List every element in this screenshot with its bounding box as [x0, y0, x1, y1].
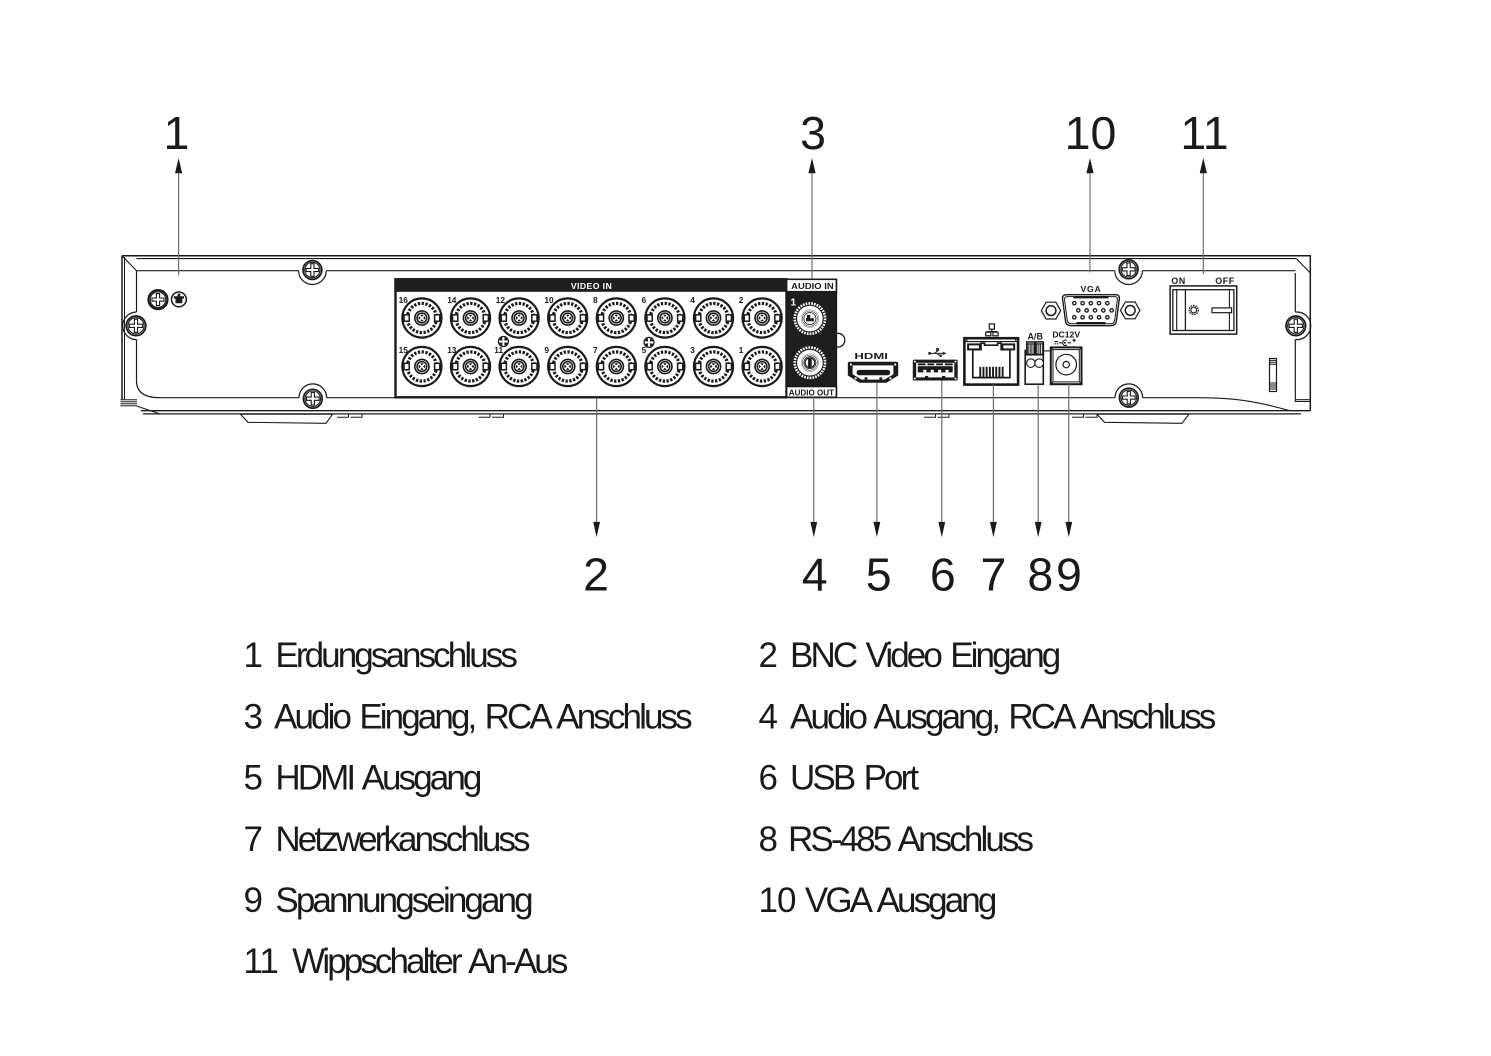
svg-text:3: 3	[690, 345, 695, 355]
svg-text:15: 15	[399, 345, 409, 355]
svg-text:5: 5	[244, 759, 262, 798]
svg-text:1: 1	[244, 636, 262, 675]
svg-text:Netzwerkanschluss: Netzwerkanschluss	[275, 820, 530, 859]
svg-text:AUDIO OUT: AUDIO OUT	[789, 387, 835, 397]
svg-text:4: 4	[802, 549, 828, 601]
svg-text:HDMI Ausgang: HDMI Ausgang	[275, 759, 481, 798]
svg-text:A/B: A/B	[1027, 331, 1043, 341]
svg-text:AUDIO IN: AUDIO IN	[791, 281, 834, 291]
svg-text:7: 7	[593, 345, 598, 355]
svg-text:12: 12	[496, 295, 506, 305]
svg-text:16: 16	[399, 295, 409, 305]
svg-text:Audio Eingang, RCA Anschluss: Audio Eingang, RCA Anschluss	[274, 697, 692, 736]
svg-text:BNC Video Eingang: BNC Video Eingang	[790, 636, 1060, 675]
svg-text:ON: ON	[1171, 276, 1185, 286]
svg-text:10: 10	[1065, 107, 1117, 159]
svg-text:6: 6	[642, 295, 647, 305]
svg-text:14: 14	[447, 295, 457, 305]
svg-text:4: 4	[759, 697, 778, 736]
svg-text:7: 7	[244, 820, 262, 859]
svg-text:10: 10	[759, 881, 796, 920]
svg-text:2: 2	[583, 549, 609, 601]
svg-text:8: 8	[593, 295, 598, 305]
svg-text:13: 13	[447, 345, 457, 355]
svg-text:2: 2	[759, 636, 777, 675]
svg-text:11: 11	[1180, 107, 1228, 159]
svg-text:9: 9	[1056, 549, 1082, 601]
svg-text:8: 8	[759, 820, 777, 859]
svg-text:2: 2	[739, 295, 744, 305]
svg-text:11: 11	[244, 942, 278, 981]
svg-text:1: 1	[163, 107, 189, 159]
svg-text:Erdungsanschluss: Erdungsanschluss	[275, 636, 517, 675]
svg-text:OFF: OFF	[1215, 276, 1234, 286]
svg-text:3: 3	[244, 697, 262, 736]
svg-text:4: 4	[690, 295, 695, 305]
svg-text:VGA: VGA	[1080, 284, 1101, 294]
svg-text:VIDEO IN: VIDEO IN	[571, 281, 612, 291]
svg-text:DC12V: DC12V	[1052, 330, 1080, 340]
svg-text:7: 7	[980, 549, 1006, 601]
svg-text:VGA Ausgang: VGA Ausgang	[805, 881, 996, 920]
svg-text:9: 9	[544, 345, 549, 355]
svg-text:3: 3	[800, 107, 826, 159]
svg-text:Wippschalter An-Aus: Wippschalter An-Aus	[292, 942, 568, 981]
svg-text:1: 1	[790, 296, 796, 308]
svg-text:Audio Ausgang, RCA Anschluss: Audio Ausgang, RCA Anschluss	[790, 697, 1216, 736]
svg-text:USB Port: USB Port	[790, 759, 919, 798]
svg-text:6: 6	[930, 549, 956, 601]
svg-text:1: 1	[739, 345, 744, 355]
svg-text:9: 9	[244, 881, 262, 920]
svg-text:Spannungseingang: Spannungseingang	[275, 881, 532, 920]
svg-text:6: 6	[759, 759, 777, 798]
svg-text:8: 8	[1027, 549, 1053, 601]
svg-text:5: 5	[866, 549, 892, 601]
svg-text:RS-485 Anschluss: RS-485 Anschluss	[788, 820, 1033, 859]
svg-text:HDMI: HDMI	[854, 352, 887, 361]
svg-text:10: 10	[544, 295, 554, 305]
